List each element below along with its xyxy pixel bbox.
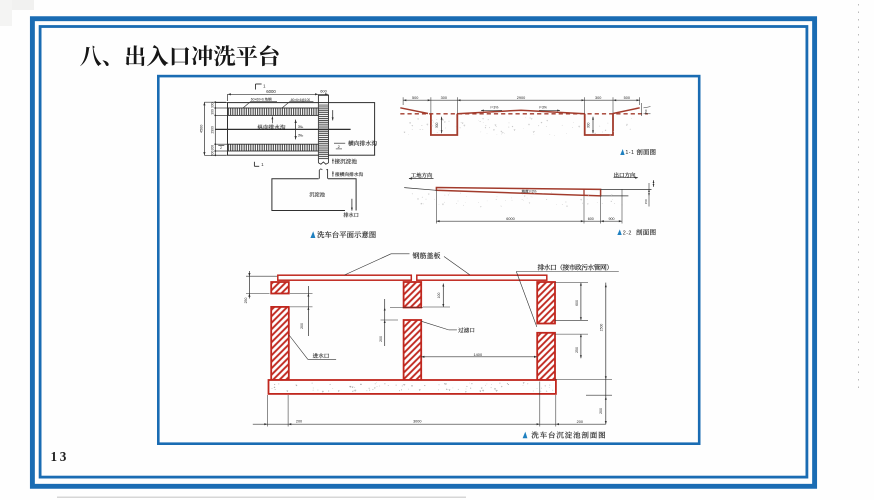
svg-text:300: 300 [210, 109, 214, 115]
svg-text:13: 13 [51, 449, 69, 464]
svg-text:6000: 6000 [266, 89, 276, 94]
svg-text:-60×6×6@100: -60×6×6@100 [290, 98, 311, 102]
svg-text:200: 200 [577, 420, 583, 424]
svg-text:600: 600 [320, 89, 327, 94]
svg-text:1400: 1400 [473, 352, 482, 357]
svg-text:500: 500 [624, 96, 630, 100]
svg-text:150: 150 [644, 199, 648, 204]
svg-text:600: 600 [588, 217, 594, 221]
svg-text:2900: 2900 [210, 126, 214, 134]
svg-text:2900: 2900 [517, 96, 525, 100]
svg-text:6000: 6000 [506, 217, 514, 221]
svg-text:3‰: 3‰ [298, 133, 304, 137]
svg-text:250: 250 [244, 298, 248, 304]
svg-text:500: 500 [412, 96, 418, 100]
svg-text:1500: 1500 [599, 324, 603, 332]
svg-text:200: 200 [599, 408, 603, 414]
svg-text:200: 200 [300, 323, 304, 329]
svg-text:900: 900 [609, 217, 615, 221]
svg-text:300: 300 [586, 122, 590, 128]
svg-text:300: 300 [210, 150, 214, 156]
svg-text:4500: 4500 [200, 125, 204, 133]
svg-text:3000: 3000 [413, 419, 421, 423]
svg-text:300: 300 [435, 122, 439, 128]
svg-text:i=3%: i=3% [539, 106, 547, 110]
svg-text:250: 250 [575, 347, 579, 353]
svg-text:i=3%: i=3% [491, 106, 499, 110]
svg-text:300: 300 [441, 96, 447, 100]
svg-text:2: 2 [220, 146, 222, 150]
svg-text:3‰: 3‰ [298, 125, 304, 129]
svg-text:100: 100 [437, 293, 441, 299]
svg-text:600: 600 [575, 300, 579, 306]
svg-text:2-2: 2-2 [623, 230, 632, 236]
svg-text:300: 300 [595, 96, 601, 100]
svg-text:300: 300 [210, 145, 214, 151]
svg-text:200: 200 [379, 336, 383, 342]
svg-text:200: 200 [296, 419, 302, 423]
svg-text:i=3%: i=3% [529, 190, 536, 194]
svg-text:1-1: 1-1 [625, 150, 634, 156]
svg-text:60×60×6: 60×60×6 [251, 98, 264, 102]
svg-text:300: 300 [210, 102, 214, 108]
